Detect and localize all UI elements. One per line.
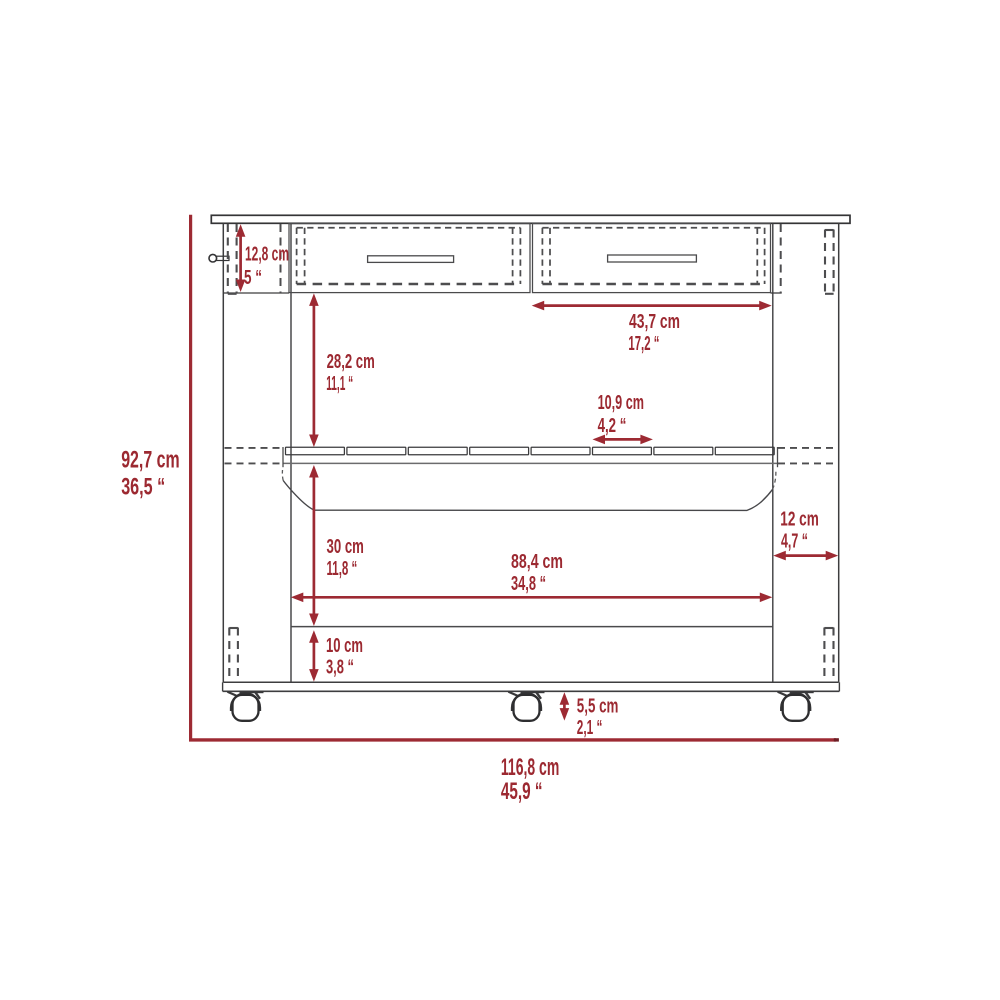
svg-text:5,5 cm: 5,5 cm [577,695,619,718]
svg-text:88,4 cm: 88,4 cm [511,550,563,573]
svg-text:17,2 “: 17,2 “ [628,332,659,355]
svg-text:36,5 “: 36,5 “ [121,473,165,500]
svg-text:11,8 “: 11,8 “ [327,557,358,580]
svg-text:4,7 “: 4,7 “ [781,530,808,553]
svg-text:10,9 cm: 10,9 cm [598,391,644,414]
svg-text:45,9 “: 45,9 “ [501,778,543,805]
svg-text:10 cm: 10 cm [326,634,363,657]
svg-text:11,1 “: 11,1 “ [326,372,353,395]
svg-text:12,8 cm: 12,8 cm [245,243,289,266]
svg-text:92,7 cm: 92,7 cm [121,447,179,474]
svg-text:4,2 “: 4,2 “ [598,414,627,437]
svg-text:34,8 “: 34,8 “ [511,572,546,595]
svg-text:43,7 cm: 43,7 cm [629,310,680,333]
svg-text:30 cm: 30 cm [327,535,364,558]
svg-text:5 “: 5 “ [244,266,262,289]
svg-text:2,1 “: 2,1 “ [577,716,603,739]
svg-text:12 cm: 12 cm [780,508,819,531]
svg-text:3,8 “: 3,8 “ [326,656,354,679]
svg-text:28,2 cm: 28,2 cm [327,350,375,373]
